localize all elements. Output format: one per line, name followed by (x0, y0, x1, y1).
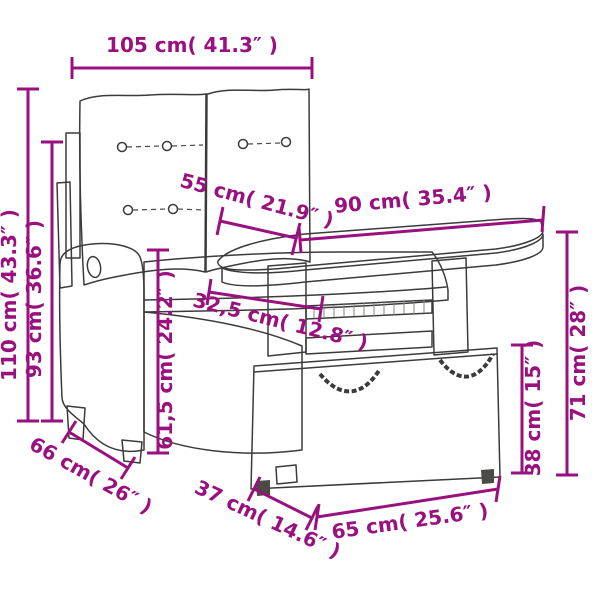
dim-stool-width-label: 65 cm( 25.6″ ) (330, 498, 490, 544)
table (218, 219, 543, 357)
dim-tabletop-depth-label: 55 cm( 21.9″ ) (178, 168, 337, 232)
armrest-grommet (86, 256, 102, 279)
dim-stool-width: 65 cm( 25.6″ ) (315, 476, 500, 544)
table-support-right (432, 258, 468, 355)
dim-overall-height-label: 110 cm( 43.3″ ) (0, 209, 21, 381)
dim-stool-height-label: 38 cm( 15″ ) (521, 340, 545, 476)
dim-seat-back-height-label: 61,5 cm( 24.2″ ) (153, 270, 177, 450)
dim-bench-depth: 66 cm( 26″ ) (25, 421, 156, 519)
dimension-annotations: 105 cm( 41.3″ ) 110 cm( 43.3″ ) 93 cm( 3… (0, 33, 590, 563)
dim-overall-width: 105 cm( 41.3″ ) (72, 33, 312, 79)
furniture-sketch (57, 89, 543, 496)
seat-cushion-piping (144, 287, 446, 300)
dim-tabletop-width: 90 cm( 35.4″ ) (299, 180, 544, 253)
dim-stool-height: 38 cm( 15″ ) (511, 340, 545, 476)
stool-vent (276, 465, 297, 484)
dim-backrest-height-label: 93 cm( 36.6″ ) (22, 220, 46, 378)
stool-foot-right (481, 469, 494, 484)
dim-overall-width-label: 105 cm( 41.3″ ) (106, 33, 278, 57)
recliner-strut (66, 133, 80, 258)
dim-tabletop-width-label: 90 cm( 35.4″ ) (333, 180, 492, 218)
dim-table-height: 71 cm( 28″ ) (556, 232, 590, 475)
storage-stool (251, 348, 500, 496)
stool-handle-left (320, 369, 380, 391)
dim-table-height-label: 71 cm( 28″ ) (566, 285, 590, 421)
table-top (218, 219, 543, 271)
dimension-diagram: 105 cm( 41.3″ ) 110 cm( 43.3″ ) 93 cm( 3… (0, 0, 600, 600)
dim-seat-back-height: 61,5 cm( 24.2″ ) (147, 250, 177, 453)
diagram-canvas: 105 cm( 41.3″ ) 110 cm( 43.3″ ) 93 cm( 3… (0, 0, 600, 600)
